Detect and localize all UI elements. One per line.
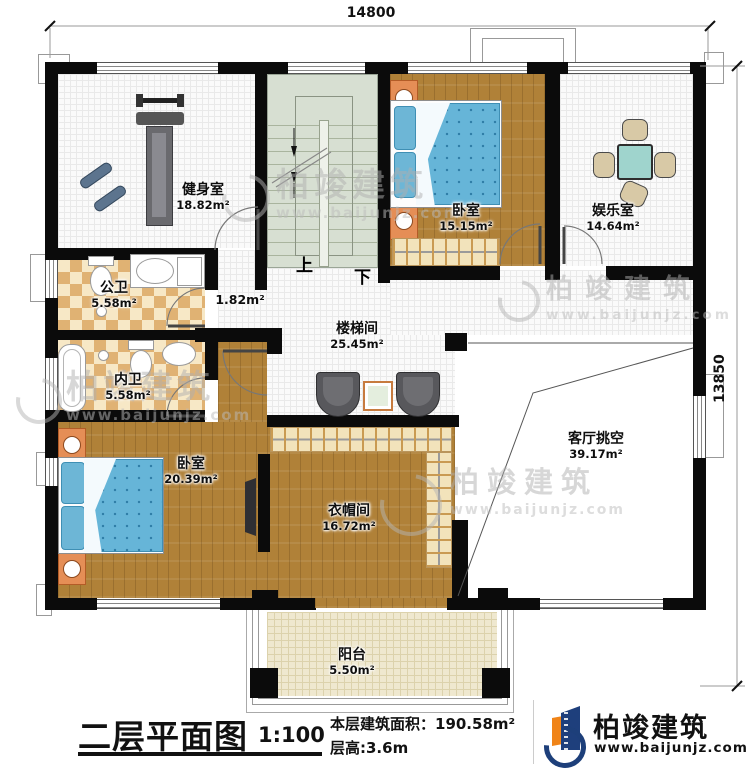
room-label-public-bath: 公卫 5.58m² <box>91 281 136 310</box>
room-label-cloakroom: 衣帽间 16.72m² <box>322 504 375 533</box>
titleblock-divider <box>533 700 534 764</box>
room-label-bedroom-top: 卧室 15.15m² <box>439 204 492 233</box>
stair-down-label: 下 <box>354 263 371 288</box>
void-boundary-lines <box>458 343 693 596</box>
title-underline <box>78 752 322 756</box>
stair-break-line <box>272 148 331 187</box>
door-swings <box>167 207 602 416</box>
dimension-right-value: 13850 <box>712 354 728 403</box>
dimension-line-top <box>50 26 710 60</box>
company-url: www.baijunjz.com <box>594 740 748 756</box>
stair-direction-arrows <box>291 128 297 198</box>
room-label-stairwell: 楼梯间 25.45m² <box>330 322 383 351</box>
plan-title: 二层平面图 <box>78 710 248 758</box>
room-label-entertainment: 娱乐室 14.64m² <box>586 204 639 233</box>
room-label-balcony: 阳台 5.50m² <box>329 648 374 677</box>
room-label-private-bath: 内卫 5.58m² <box>105 373 150 402</box>
room-label-gym: 健身室 18.82m² <box>176 183 229 212</box>
dimension-top-value: 14800 <box>347 5 396 21</box>
room-label-bedroom-main: 卧室 20.39m² <box>164 457 217 486</box>
room-label-living-void: 客厅挑空 39.17m² <box>568 432 624 461</box>
plan-scale: 1:100 <box>258 723 325 747</box>
floor-area-text: 本层建筑面积：190.58m² <box>330 713 515 734</box>
floor-height-text: 层高:3.6m <box>330 737 408 758</box>
stair-up-label: 上 <box>296 251 313 276</box>
floor-plan-page: 柏竣建筑 www.baijunjz.com 柏竣建筑 www.baijunjz.… <box>0 0 750 772</box>
door-leaves <box>168 209 564 416</box>
company-logo-icon <box>544 704 590 762</box>
room-label-lobby-area: 1.82m² <box>215 293 264 307</box>
